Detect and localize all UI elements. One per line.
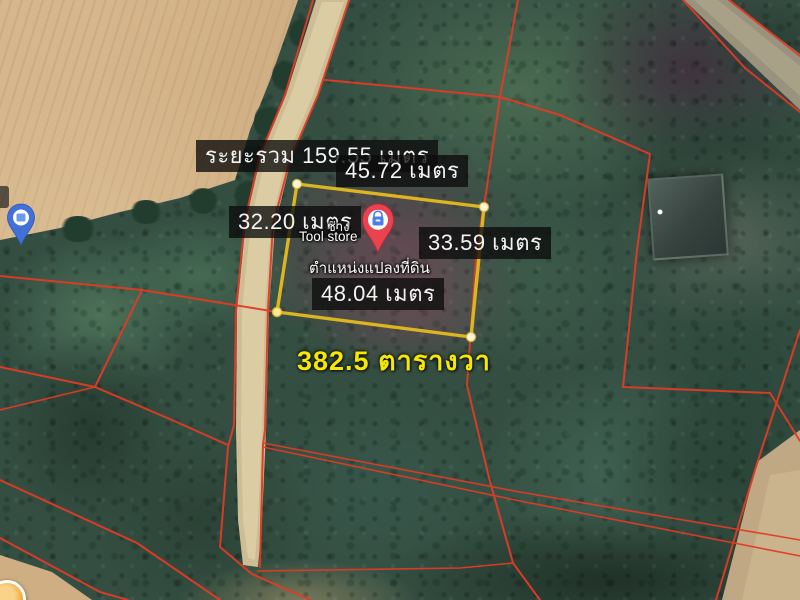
poi-store-label[interactable]: Tool store: [299, 229, 358, 244]
poi-pin-icon[interactable]: [6, 203, 36, 247]
line-vertex-dot: [658, 210, 663, 215]
plot-corner-dot: [480, 203, 489, 212]
plot-area-label: 382.5 ตารางวา: [297, 339, 491, 382]
satellite-map-canvas[interactable]: ระยะรวม 159.55 เมตร 45.72 เมตร 32.20 เมต…: [0, 0, 800, 600]
side-bottom-label: 48.04 เมตร: [312, 278, 444, 310]
side-top-label: 45.72 เมตร: [336, 155, 468, 187]
side-right-label: 33.59 เมตร: [419, 227, 551, 259]
plot-corner-dot: [293, 180, 302, 189]
store-pin-icon[interactable]: [361, 203, 395, 255]
plot-corner-dot: [273, 308, 282, 317]
plot-position-label: ตำแหน่งแปลงที่ดิน: [309, 256, 430, 280]
